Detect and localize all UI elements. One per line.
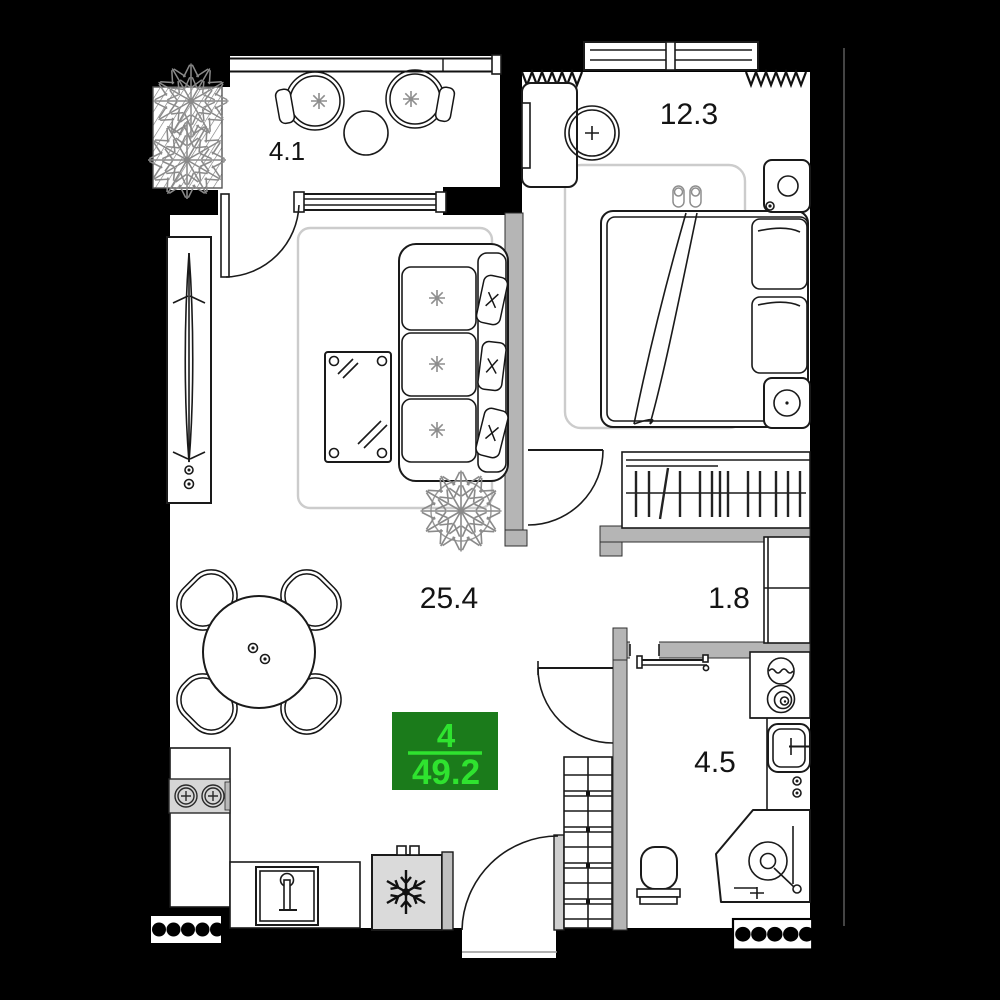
cooktop [169,779,230,813]
vent-grille-icon [150,915,224,944]
floor-plan-svg: 4.1 [0,0,1000,1000]
burner-icon [202,785,224,807]
balcony-railing [230,55,501,74]
unit-number: 4 [437,717,456,754]
kitchen-sink [256,867,318,925]
hall-closet [764,537,810,643]
vent-grille-icon [733,919,814,949]
hallway-area-label: 1.8 [708,582,750,615]
fridge [372,846,453,930]
wardrobe-hanger-rail [622,452,810,528]
sofa [399,244,509,481]
balcony-area-label: 4.1 [269,136,305,166]
tv-stand [167,237,211,503]
dining-table [203,596,315,708]
unit-badge: 4 49.2 [392,712,498,792]
bedroom-window [584,42,758,70]
balcony-glazing-window [294,192,446,212]
washing-machine [750,652,810,718]
bathroom-door-gap [630,641,659,659]
living-area-label: 25.4 [420,582,478,615]
toilet [637,847,680,904]
pillow [752,297,807,373]
nightstand-top [764,160,810,212]
burner-icon [175,785,197,807]
floor-plan-page: 4.1 [0,0,1000,1000]
sofa-pillow [477,341,507,392]
bathroom-area-label: 4.5 [694,746,736,779]
unit-total-area: 49.2 [412,753,480,792]
pillow [752,219,807,289]
bedroom-area-label: 12.3 [660,98,718,131]
nightstand-bottom [764,378,810,428]
coffee-table [325,352,391,462]
shoe-cabinet [564,757,612,928]
